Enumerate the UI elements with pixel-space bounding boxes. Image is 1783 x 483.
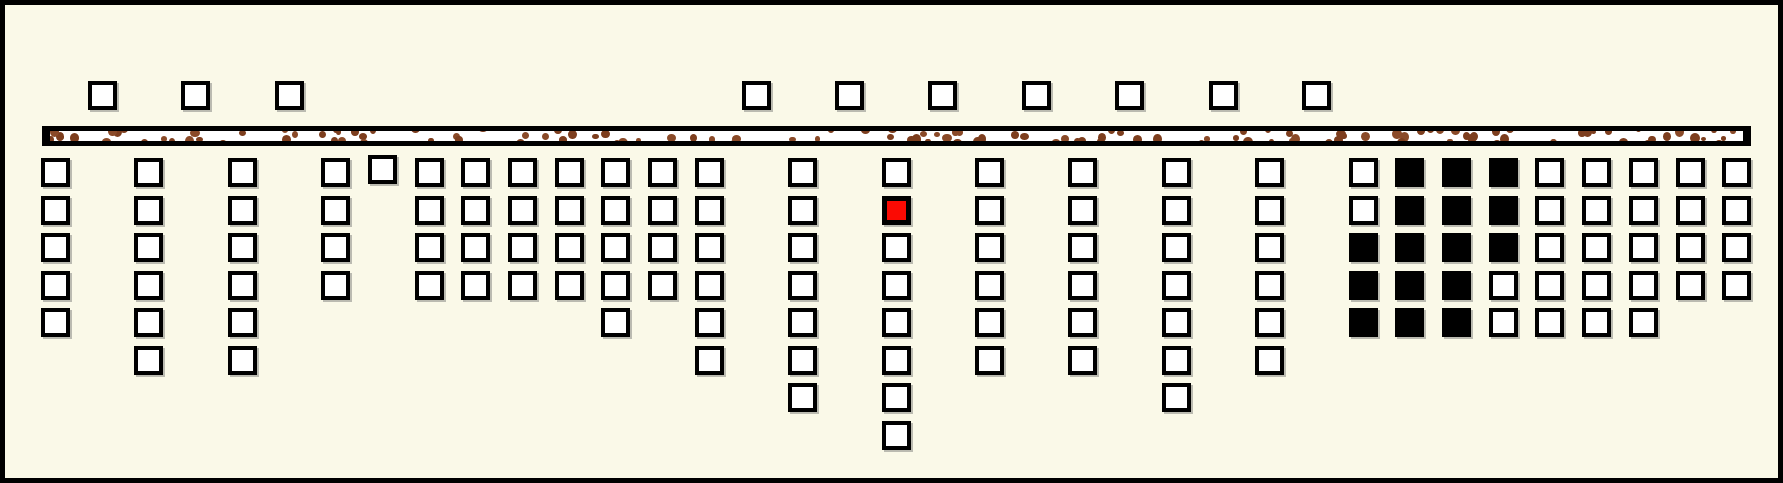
board-cell[interactable] — [1255, 196, 1284, 225]
board-cell[interactable] — [228, 158, 257, 187]
board-cell[interactable] — [975, 308, 1004, 337]
soil-speckle — [1361, 132, 1370, 141]
surface-cell[interactable] — [181, 81, 210, 110]
board-cell[interactable] — [788, 346, 817, 375]
board-cell[interactable] — [1068, 158, 1097, 187]
surface-cell[interactable] — [1115, 81, 1144, 110]
soil-speckle — [1334, 136, 1343, 141]
board-cell[interactable] — [41, 271, 70, 300]
surface-cell[interactable] — [1209, 81, 1238, 110]
board-cell[interactable] — [1582, 196, 1611, 225]
board-cell-black[interactable] — [1442, 308, 1471, 337]
surface-cell[interactable] — [742, 81, 771, 110]
board-cell[interactable] — [1349, 158, 1378, 187]
board-cell[interactable] — [1629, 196, 1658, 225]
soil-speckle — [370, 131, 376, 134]
soil-speckle — [161, 136, 168, 141]
soil-speckle — [1325, 139, 1334, 141]
surface-cell[interactable] — [88, 81, 117, 110]
soil-speckle — [1500, 134, 1509, 141]
board-cell[interactable] — [508, 233, 537, 262]
board-cell[interactable] — [975, 158, 1004, 187]
board-cell[interactable] — [1068, 233, 1097, 262]
soil-speckle — [1551, 139, 1556, 141]
board-cell[interactable] — [788, 158, 817, 187]
surface-cell[interactable] — [1022, 81, 1051, 110]
board-cell[interactable] — [1489, 271, 1518, 300]
board-cell[interactable] — [1349, 196, 1378, 225]
board-cell[interactable] — [461, 196, 490, 225]
board-cell[interactable] — [695, 271, 724, 300]
board-cell[interactable] — [1582, 158, 1611, 187]
soil-speckle — [292, 131, 298, 138]
board-cell[interactable] — [648, 271, 677, 300]
board-cell[interactable] — [1676, 271, 1705, 300]
board-cell[interactable] — [321, 271, 350, 300]
board-cell[interactable] — [1162, 383, 1191, 412]
soil-speckle — [1605, 131, 1612, 135]
surface-cell[interactable] — [835, 81, 864, 110]
board-cell[interactable] — [41, 196, 70, 225]
soil-speckle — [1243, 137, 1252, 141]
board-cell[interactable] — [134, 233, 163, 262]
surface-cell[interactable] — [275, 81, 304, 110]
board-cell[interactable] — [555, 271, 584, 300]
board-cell[interactable] — [1676, 196, 1705, 225]
board-cell[interactable] — [1068, 308, 1097, 337]
soil-speckle — [1417, 131, 1425, 135]
ground-bar — [42, 126, 1751, 146]
soil-speckle — [1269, 139, 1274, 141]
board-cell[interactable] — [975, 271, 1004, 300]
soil-speckle — [1133, 135, 1142, 141]
board-cell[interactable] — [321, 196, 350, 225]
soil-speckle — [239, 131, 246, 136]
board-cell[interactable] — [415, 196, 444, 225]
soil-speckle — [1619, 138, 1628, 141]
board-cell[interactable] — [1629, 233, 1658, 262]
board-cell[interactable] — [1162, 308, 1191, 337]
surface-cell[interactable] — [928, 81, 957, 110]
board-cell[interactable] — [1068, 346, 1097, 375]
board-cell[interactable] — [695, 196, 724, 225]
board-cell[interactable] — [788, 233, 817, 262]
soil-speckle — [516, 139, 525, 141]
soil-speckle — [1578, 131, 1585, 137]
soil-speckle — [542, 133, 549, 140]
board-cell[interactable] — [228, 271, 257, 300]
board-cell[interactable] — [134, 346, 163, 375]
board-cell[interactable] — [788, 271, 817, 300]
board-cell[interactable] — [695, 158, 724, 187]
board-cell[interactable] — [508, 196, 537, 225]
board-cell[interactable] — [601, 233, 630, 262]
soil-speckle — [1397, 138, 1406, 141]
board-cell[interactable] — [1676, 158, 1705, 187]
board-cell[interactable] — [1722, 233, 1751, 262]
soil-speckle — [667, 134, 676, 141]
board-cell[interactable] — [41, 308, 70, 337]
soil-speckle — [360, 139, 368, 141]
soil-speckle — [1020, 133, 1029, 140]
soil-speckle — [411, 131, 420, 133]
soil-speckle — [1506, 131, 1514, 133]
soil-speckle — [815, 136, 821, 141]
board-cell[interactable] — [1255, 158, 1284, 187]
board-cell[interactable] — [415, 271, 444, 300]
board-cell[interactable] — [601, 158, 630, 187]
board-cell-black[interactable] — [1349, 308, 1378, 337]
soil-speckle — [559, 136, 568, 141]
soil-speckle — [1097, 138, 1104, 141]
board-cell-black[interactable] — [1442, 158, 1471, 187]
board-cell-red[interactable] — [882, 196, 911, 225]
board-cell[interactable] — [1535, 196, 1564, 225]
board-cell[interactable] — [882, 383, 911, 412]
soil-speckle — [455, 136, 462, 141]
soil-speckle — [1289, 138, 1295, 141]
soil-speckle — [618, 138, 628, 141]
soil-speckle — [70, 133, 79, 141]
board-cell[interactable] — [882, 421, 911, 450]
board-cell-black[interactable] — [1395, 196, 1424, 225]
board-cell[interactable] — [975, 233, 1004, 262]
soil-speckle — [978, 134, 986, 141]
soil-speckle — [828, 131, 834, 133]
soil-speckle — [709, 136, 715, 141]
board-cell[interactable] — [695, 346, 724, 375]
soil-speckle — [331, 137, 338, 141]
soil-speckle — [925, 139, 930, 141]
board-cell[interactable] — [555, 233, 584, 262]
board-cell[interactable] — [228, 196, 257, 225]
board-cell[interactable] — [1255, 233, 1284, 262]
board-cell[interactable] — [461, 271, 490, 300]
soil-speckle — [102, 138, 111, 141]
soil-speckle — [1436, 131, 1445, 134]
soil-speckle — [428, 138, 433, 141]
board-cell[interactable] — [1629, 271, 1658, 300]
board-cell[interactable] — [695, 233, 724, 262]
board-cell[interactable] — [1162, 346, 1191, 375]
soil-speckle — [1074, 138, 1081, 141]
board-cell[interactable] — [1255, 346, 1284, 375]
soil-speckle — [282, 135, 291, 141]
board-cell[interactable] — [1535, 271, 1564, 300]
board-cell[interactable] — [1722, 196, 1751, 225]
board-cell[interactable] — [1535, 233, 1564, 262]
soil-speckle — [1108, 131, 1116, 134]
soil-speckle — [1701, 137, 1706, 141]
board-cell[interactable] — [648, 196, 677, 225]
soil-speckle — [732, 135, 742, 141]
board-cell[interactable] — [1582, 271, 1611, 300]
soil-speckle — [907, 136, 915, 141]
board-cell[interactable] — [882, 308, 911, 337]
board-cell[interactable] — [882, 271, 911, 300]
board-cell[interactable] — [461, 233, 490, 262]
soil-speckle — [219, 140, 226, 141]
soil-speckle — [1711, 131, 1717, 133]
ground-bar-soil-strip — [50, 131, 1743, 141]
soil-speckle — [920, 131, 928, 137]
board-cell[interactable] — [648, 233, 677, 262]
board-cell-black[interactable] — [1489, 233, 1518, 262]
board-cell[interactable] — [1535, 158, 1564, 187]
board-cell[interactable] — [134, 308, 163, 337]
board-cell[interactable] — [788, 196, 817, 225]
soil-speckle — [1051, 139, 1061, 141]
board-cell[interactable] — [1255, 308, 1284, 337]
board-cell[interactable] — [695, 308, 724, 337]
board-cell[interactable] — [1162, 271, 1191, 300]
board-cell-black[interactable] — [1442, 196, 1471, 225]
board-cell[interactable] — [975, 196, 1004, 225]
board-cell[interactable] — [134, 271, 163, 300]
board-cell-black[interactable] — [1489, 196, 1518, 225]
board-cell[interactable] — [41, 233, 70, 262]
board-canvas — [0, 0, 1783, 483]
board-cell[interactable] — [368, 155, 397, 184]
board-cell[interactable] — [601, 271, 630, 300]
board-cell[interactable] — [415, 233, 444, 262]
soil-speckle — [601, 131, 610, 138]
soil-speckle — [1117, 131, 1124, 136]
soil-speckle — [1233, 135, 1239, 141]
board-cell-black[interactable] — [1395, 271, 1424, 300]
board-cell-black[interactable] — [1395, 158, 1424, 187]
board-cell[interactable] — [882, 346, 911, 375]
board-cell[interactable] — [1676, 233, 1705, 262]
soil-speckle — [1061, 135, 1069, 141]
soil-speckle — [478, 131, 487, 132]
board-cell[interactable] — [1629, 308, 1658, 337]
board-cell[interactable] — [882, 233, 911, 262]
board-cell-black[interactable] — [1489, 158, 1518, 187]
soil-speckle — [196, 137, 203, 141]
board-cell[interactable] — [555, 196, 584, 225]
board-cell[interactable] — [601, 308, 630, 337]
soil-speckle — [942, 134, 952, 141]
soil-speckle — [1663, 132, 1671, 141]
board-cell[interactable] — [1489, 308, 1518, 337]
soil-speckle — [50, 136, 54, 141]
soil-speckle — [1204, 136, 1210, 141]
soil-speckle — [1675, 131, 1684, 137]
soil-speckle — [1265, 131, 1271, 133]
board-cell[interactable] — [1535, 308, 1564, 337]
soil-speckle — [636, 138, 642, 141]
board-cell[interactable] — [648, 158, 677, 187]
board-cell[interactable] — [508, 158, 537, 187]
soil-speckle — [1591, 131, 1597, 134]
soil-speckle — [1463, 132, 1470, 140]
soil-speckle — [338, 137, 346, 141]
board-cell[interactable] — [461, 158, 490, 187]
board-cell[interactable] — [134, 158, 163, 187]
soil-speckle — [592, 134, 599, 140]
soil-speckle — [282, 131, 289, 133]
soil-speckle — [185, 136, 194, 141]
soil-speckle — [319, 131, 327, 138]
board-cell[interactable] — [508, 271, 537, 300]
soil-speckle — [887, 134, 894, 140]
soil-speckle — [934, 132, 940, 137]
board-cell[interactable] — [321, 158, 350, 187]
board-cell[interactable] — [228, 233, 257, 262]
board-cell-black[interactable] — [1442, 233, 1471, 262]
board-cell[interactable] — [1162, 158, 1191, 187]
board-cell[interactable] — [788, 383, 817, 412]
board-cell[interactable] — [555, 158, 584, 187]
board-cell[interactable] — [601, 196, 630, 225]
soil-speckle — [1240, 131, 1247, 135]
soil-speckle — [568, 131, 577, 139]
board-cell[interactable] — [788, 308, 817, 337]
board-cell-black[interactable] — [1395, 308, 1424, 337]
soil-speckle — [1730, 131, 1736, 134]
soil-speckle — [120, 131, 128, 133]
board-cell[interactable] — [1582, 233, 1611, 262]
soil-speckle — [1690, 133, 1700, 141]
soil-speckle — [953, 139, 961, 141]
soil-speckle — [1011, 131, 1019, 138]
board-cell[interactable] — [415, 158, 444, 187]
board-cell[interactable] — [41, 158, 70, 187]
board-cell[interactable] — [882, 158, 911, 187]
board-cell-black[interactable] — [1349, 271, 1378, 300]
soil-speckle — [789, 137, 796, 141]
board-cell[interactable] — [321, 233, 350, 262]
board-cell[interactable] — [975, 346, 1004, 375]
soil-speckle — [888, 131, 896, 133]
board-cell[interactable] — [1582, 308, 1611, 337]
soil-speckle — [1644, 140, 1652, 141]
soil-speckle — [1447, 139, 1452, 141]
board-cell[interactable] — [1722, 158, 1751, 187]
board-cell[interactable] — [1162, 196, 1191, 225]
soil-speckle — [1636, 131, 1642, 132]
board-cell[interactable] — [228, 346, 257, 375]
board-cell[interactable] — [1162, 233, 1191, 262]
soil-speckle — [351, 131, 358, 136]
soil-speckle — [141, 139, 149, 141]
board-cell-black[interactable] — [1442, 271, 1471, 300]
surface-cell[interactable] — [1302, 81, 1331, 110]
board-cell-black[interactable] — [1395, 233, 1424, 262]
board-cell[interactable] — [1255, 271, 1284, 300]
soil-speckle — [1492, 131, 1500, 136]
soil-speckle — [861, 131, 871, 134]
soil-speckle — [1153, 134, 1161, 141]
board-cell-black[interactable] — [1349, 233, 1378, 262]
soil-speckle — [554, 131, 562, 134]
soil-speckle — [522, 132, 529, 139]
board-cell[interactable] — [1629, 158, 1658, 187]
soil-speckle — [1427, 131, 1434, 133]
soil-speckle — [956, 131, 963, 136]
soil-speckle — [169, 138, 175, 141]
board-cell[interactable] — [228, 308, 257, 337]
board-cell[interactable] — [1722, 271, 1751, 300]
soil-speckle — [1451, 131, 1460, 135]
board-cell[interactable] — [134, 196, 163, 225]
soil-speckle — [690, 134, 698, 141]
board-cell[interactable] — [1068, 271, 1097, 300]
board-cell[interactable] — [1068, 196, 1097, 225]
